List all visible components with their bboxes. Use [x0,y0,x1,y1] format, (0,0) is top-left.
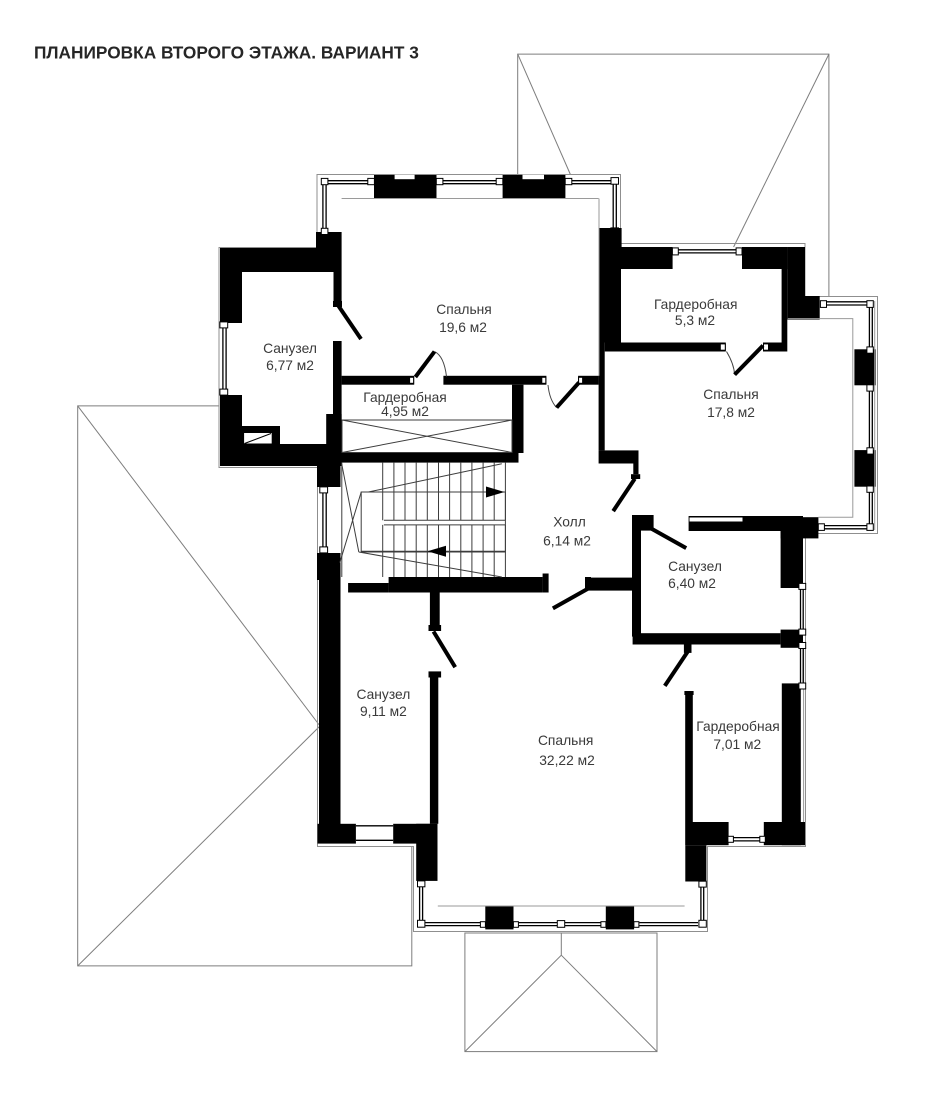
svg-text:17,8 м2: 17,8 м2 [707,405,755,420]
svg-text:5,3 м2: 5,3 м2 [675,313,715,328]
svg-text:9,11 м2: 9,11 м2 [360,704,407,719]
svg-text:Гардеробная: Гардеробная [696,719,779,734]
svg-text:4,95 м2: 4,95 м2 [381,404,429,419]
svg-text:Гардеробная: Гардеробная [654,297,737,312]
svg-text:Спальня: Спальня [538,733,593,748]
svg-text:Санузел: Санузел [357,687,411,702]
svg-text:Спальня: Спальня [703,387,758,402]
svg-text:Санузел: Санузел [668,559,722,574]
svg-text:Гардеробная: Гардеробная [363,390,446,405]
svg-text:6,14 м2: 6,14 м2 [543,534,591,549]
svg-text:Холл: Холл [553,515,586,530]
svg-text:6,77 м2: 6,77 м2 [266,358,314,373]
svg-text:7,01 м2: 7,01 м2 [713,737,761,752]
svg-text:Спальня: Спальня [436,302,491,317]
svg-text:Санузел: Санузел [263,341,317,356]
svg-text:6,40 м2: 6,40 м2 [668,576,716,591]
svg-text:19,6 м2: 19,6 м2 [439,320,487,335]
svg-text:32,22 м2: 32,22 м2 [539,753,595,768]
svg-text:ПЛАНИРОВКА ВТОРОГО ЭТАЖА. ВАРИ: ПЛАНИРОВКА ВТОРОГО ЭТАЖА. ВАРИАНТ 3 [34,43,419,63]
